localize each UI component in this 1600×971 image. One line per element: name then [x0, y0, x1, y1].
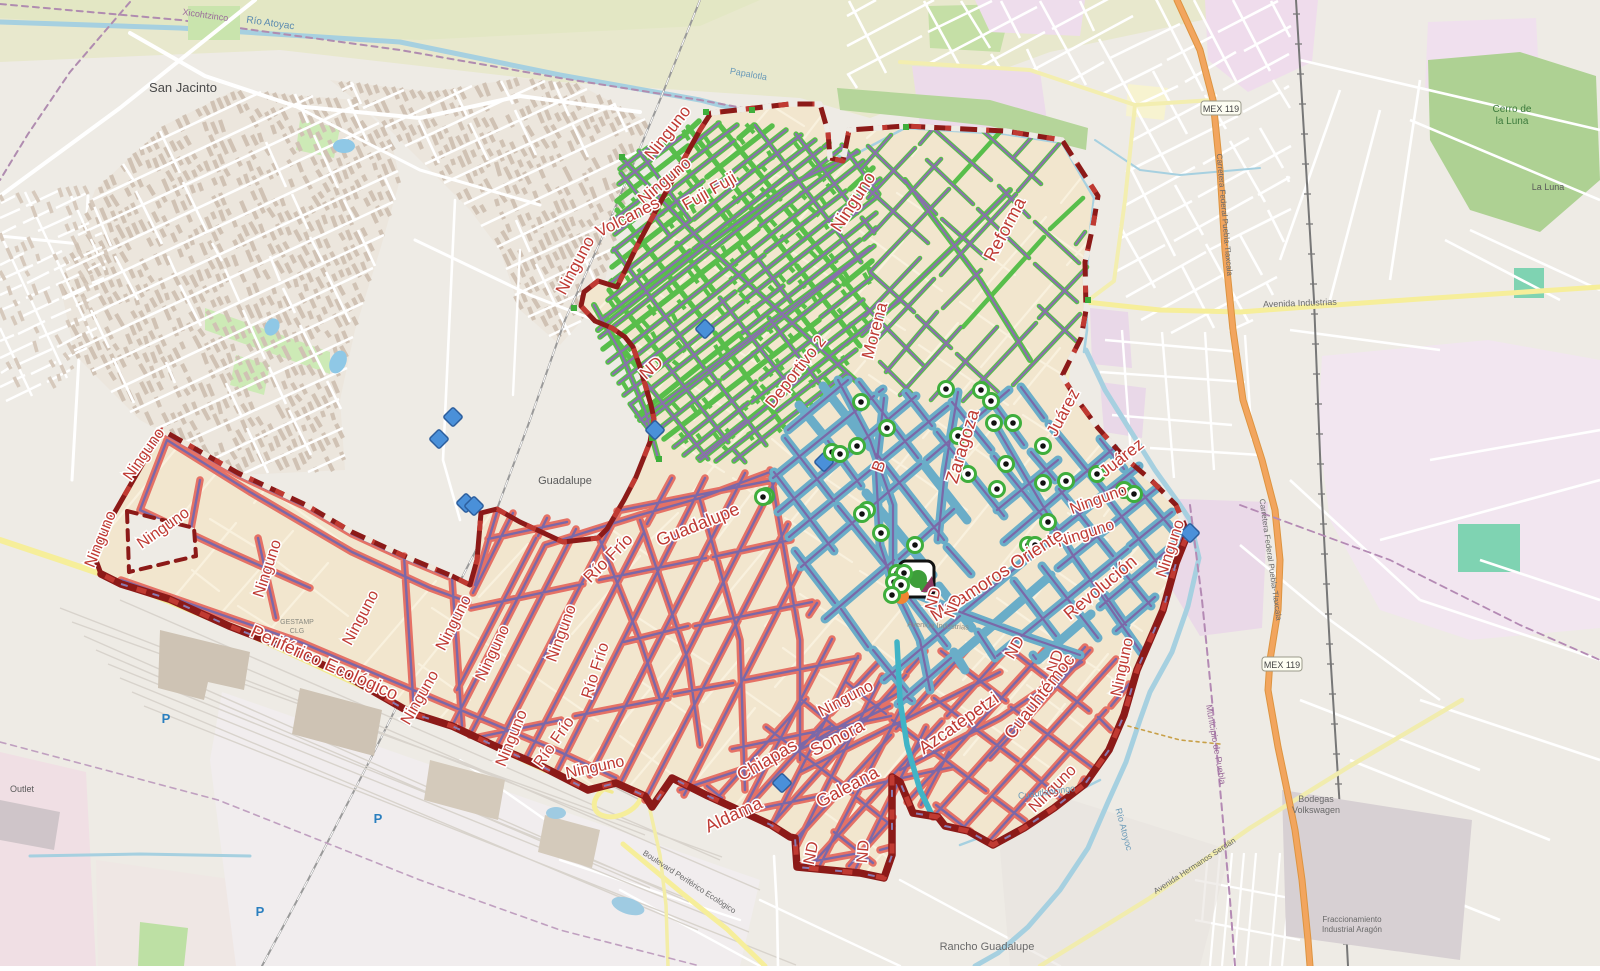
svg-text:Cerro de: Cerro de [1493, 104, 1532, 115]
svg-text:CLG: CLG [290, 628, 304, 635]
svg-text:San Jacinto: San Jacinto [149, 80, 217, 95]
svg-text:Fraccionamiento: Fraccionamiento [1322, 915, 1382, 924]
svg-text:Industrial Aragón: Industrial Aragón [1322, 925, 1382, 934]
svg-text:GESTAMP: GESTAMP [280, 619, 314, 626]
svg-text:P: P [162, 711, 171, 726]
svg-text:Rancho Guadalupe: Rancho Guadalupe [940, 941, 1035, 953]
svg-text:Guadalupe: Guadalupe [538, 475, 592, 487]
svg-text:la Luna: la Luna [1496, 116, 1529, 127]
svg-text:P: P [256, 904, 265, 919]
svg-text:ND: ND [854, 839, 873, 864]
svg-text:MEX 119: MEX 119 [1203, 104, 1239, 114]
svg-text:Volkswagen: Volkswagen [1292, 805, 1340, 815]
svg-text:Outlet: Outlet [10, 784, 35, 794]
svg-text:Bodegas: Bodegas [1298, 794, 1334, 804]
svg-text:MEX 119: MEX 119 [1264, 660, 1300, 670]
svg-text:La Luna: La Luna [1532, 182, 1565, 192]
svg-text:P: P [374, 811, 383, 826]
